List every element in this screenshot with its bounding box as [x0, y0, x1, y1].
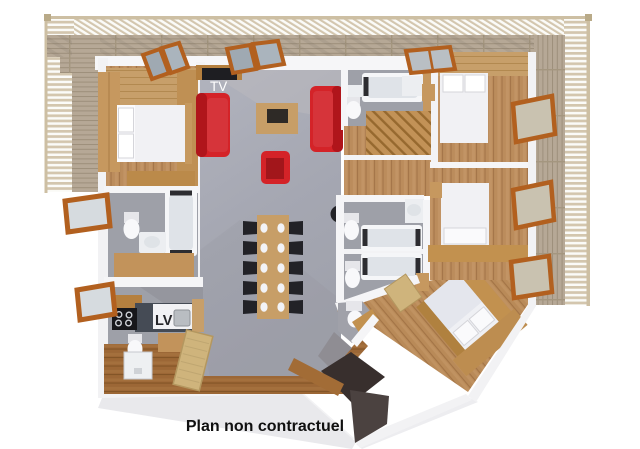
- svg-text:Plan non contractuel: Plan non contractuel: [186, 418, 344, 435]
- svg-text:LV: LV: [155, 313, 173, 329]
- svg-text:TV: TV: [210, 79, 227, 94]
